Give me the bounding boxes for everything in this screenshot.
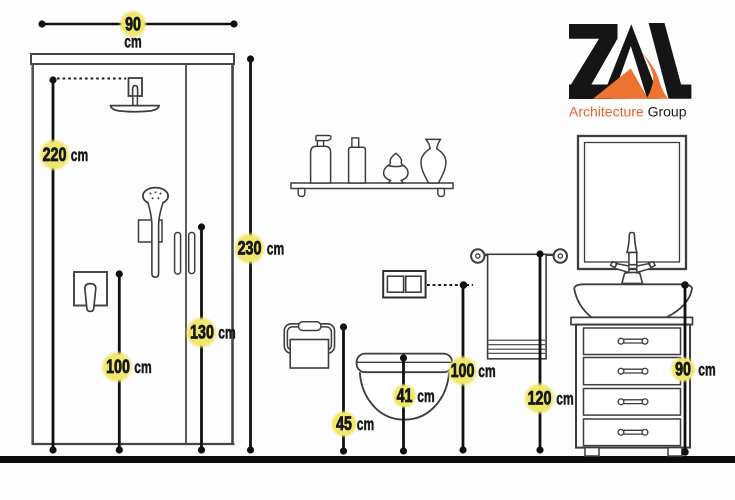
svg-text:cm: cm xyxy=(556,389,573,409)
svg-text:cm: cm xyxy=(267,239,284,259)
svg-text:120: 120 xyxy=(528,388,552,409)
svg-text:cm: cm xyxy=(417,387,434,407)
svg-text:cm: cm xyxy=(71,146,88,166)
svg-text:cm: cm xyxy=(478,362,495,382)
svg-text:cm: cm xyxy=(357,415,374,435)
svg-text:130: 130 xyxy=(190,322,214,343)
svg-text:90: 90 xyxy=(675,359,691,380)
svg-text:cm: cm xyxy=(124,32,141,52)
svg-text:100: 100 xyxy=(451,360,475,381)
svg-text:220: 220 xyxy=(43,144,67,165)
svg-text:cm: cm xyxy=(134,358,151,378)
svg-text:cm: cm xyxy=(218,323,235,343)
svg-text:41: 41 xyxy=(397,385,413,406)
svg-text:45: 45 xyxy=(336,413,352,434)
svg-text:100: 100 xyxy=(106,356,130,377)
svg-text:Architecture Group: Architecture Group xyxy=(569,104,687,120)
svg-text:cm: cm xyxy=(698,360,715,380)
svg-text:230: 230 xyxy=(238,238,262,259)
